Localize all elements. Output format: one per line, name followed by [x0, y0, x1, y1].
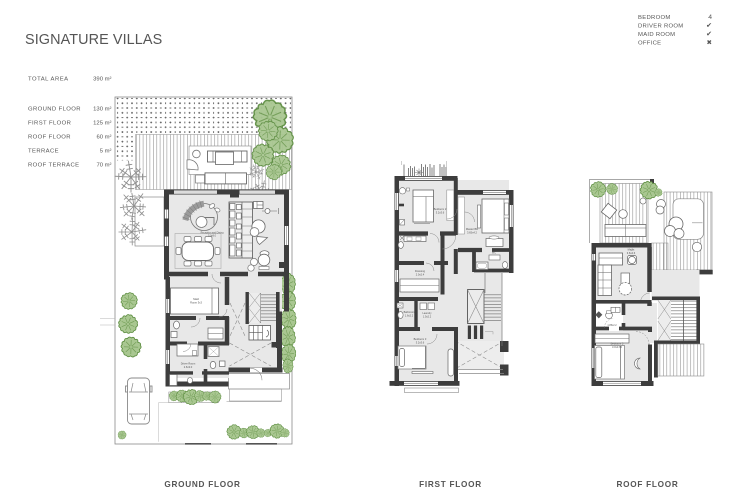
- svg-text:Bedroom 5: Bedroom 5: [611, 342, 624, 346]
- svg-text:GROUND FLOOR: GROUND FLOOR: [164, 480, 240, 489]
- svg-text:FIRST FLOOR: FIRST FLOOR: [28, 121, 71, 127]
- svg-text:390 m²: 390 m²: [93, 77, 111, 83]
- svg-text:WC: WC: [492, 252, 496, 255]
- svg-text:OFFICE: OFFICE: [638, 41, 661, 47]
- svg-text:5 m²: 5 m²: [100, 149, 112, 155]
- svg-text:125 m²: 125 m²: [93, 121, 111, 127]
- svg-text:3.65x4.2: 3.65x4.2: [467, 231, 478, 235]
- svg-text:SIGNATURE VILLAS: SIGNATURE VILLAS: [25, 32, 162, 48]
- svg-text:Bedroom 2: Bedroom 2: [434, 207, 447, 211]
- svg-text:Master BD: Master BD: [466, 227, 478, 231]
- svg-text:Room 3x3: Room 3x3: [190, 301, 202, 305]
- svg-text:✔: ✔: [706, 23, 712, 30]
- svg-text:✔: ✔: [706, 31, 712, 38]
- svg-text:3.2x3.6: 3.2x3.6: [436, 210, 445, 214]
- svg-text:4: 4: [708, 14, 712, 21]
- svg-text:3.6x4.6: 3.6x4.6: [627, 251, 636, 255]
- svg-text:ROOF FLOOR: ROOF FLOOR: [616, 480, 678, 489]
- svg-text:70 m²: 70 m²: [96, 163, 111, 169]
- svg-text:TERRACE: TERRACE: [28, 149, 59, 155]
- svg-text:ROOF TERRACE: ROOF TERRACE: [28, 163, 80, 169]
- svg-text:1.85x2.2: 1.85x2.2: [607, 324, 617, 327]
- svg-text:Dressing: Dressing: [415, 269, 426, 273]
- svg-text:✖: ✖: [707, 40, 713, 47]
- svg-text:FIRST FLOOR: FIRST FLOOR: [419, 480, 482, 489]
- svg-text:Driver Room: Driver Room: [181, 362, 196, 366]
- svg-text:2.6x3.0: 2.6x3.0: [184, 365, 193, 369]
- svg-text:MAID ROOM: MAID ROOM: [638, 32, 675, 38]
- svg-text:1.5x2.2: 1.5x2.2: [423, 315, 432, 318]
- svg-text:130 m²: 130 m²: [93, 107, 111, 113]
- svg-text:Bedroom 3: Bedroom 3: [414, 337, 427, 341]
- svg-text:3.2x3.6: 3.2x3.6: [416, 340, 425, 344]
- svg-text:ROOF FLOOR: ROOF FLOOR: [28, 135, 71, 141]
- svg-text:3.0x3.65: 3.0x3.65: [612, 345, 623, 349]
- svg-text:60 m²: 60 m²: [96, 135, 111, 141]
- svg-text:DRIVER ROOM: DRIVER ROOM: [638, 24, 684, 30]
- svg-text:2.0x2.4: 2.0x2.4: [416, 273, 425, 277]
- svg-text:Maid: Maid: [193, 297, 199, 301]
- svg-text:Majlis: Majlis: [628, 248, 635, 252]
- svg-text:TOTAL AREA: TOTAL AREA: [28, 77, 69, 83]
- svg-text:GROUND FLOOR: GROUND FLOOR: [28, 107, 81, 113]
- svg-text:5.0x9.0: 5.0x9.0: [208, 235, 217, 238]
- svg-text:1.6x2.2: 1.6x2.2: [405, 314, 414, 317]
- svg-text:BEDROOM: BEDROOM: [638, 15, 671, 21]
